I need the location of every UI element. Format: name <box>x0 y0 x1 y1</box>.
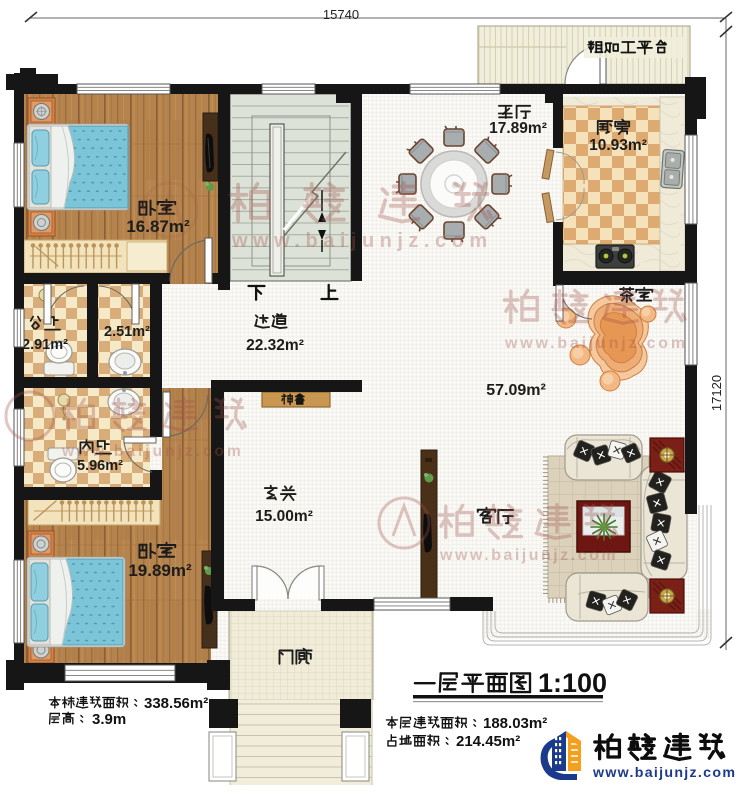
svg-text:www.baijunjz.com: www.baijunjz.com <box>592 765 736 781</box>
svg-text:2.51m²: 2.51m² <box>104 324 150 340</box>
svg-text:57.09m²: 57.09m² <box>486 382 546 399</box>
svg-text:www.baijunjz.com: www.baijunjz.com <box>439 547 618 564</box>
svg-text:338.56m²: 338.56m² <box>144 695 208 712</box>
svg-text:22.32m²: 22.32m² <box>246 337 304 354</box>
svg-text:15.00m²: 15.00m² <box>255 508 313 525</box>
svg-text:www.baijunjz.com: www.baijunjz.com <box>231 230 493 252</box>
svg-text:5.96m²: 5.96m² <box>77 458 123 474</box>
svg-text:17120: 17120 <box>709 375 724 411</box>
svg-text:3.9m: 3.9m <box>92 711 126 728</box>
svg-text:214.45m²: 214.45m² <box>456 733 520 750</box>
svg-text:10.93m²: 10.93m² <box>589 137 647 154</box>
svg-text:www.baijunjz.com: www.baijunjz.com <box>61 443 244 460</box>
svg-text:19.89m²: 19.89m² <box>128 561 192 580</box>
svg-text:15740: 15740 <box>323 7 359 22</box>
svg-text:1:100: 1:100 <box>538 668 607 698</box>
svg-text:www.baijunjz.com: www.baijunjz.com <box>504 335 688 352</box>
svg-text:2.91m²: 2.91m² <box>22 337 68 353</box>
svg-text:17.89m²: 17.89m² <box>489 120 547 137</box>
svg-text:188.03m²: 188.03m² <box>483 715 547 732</box>
